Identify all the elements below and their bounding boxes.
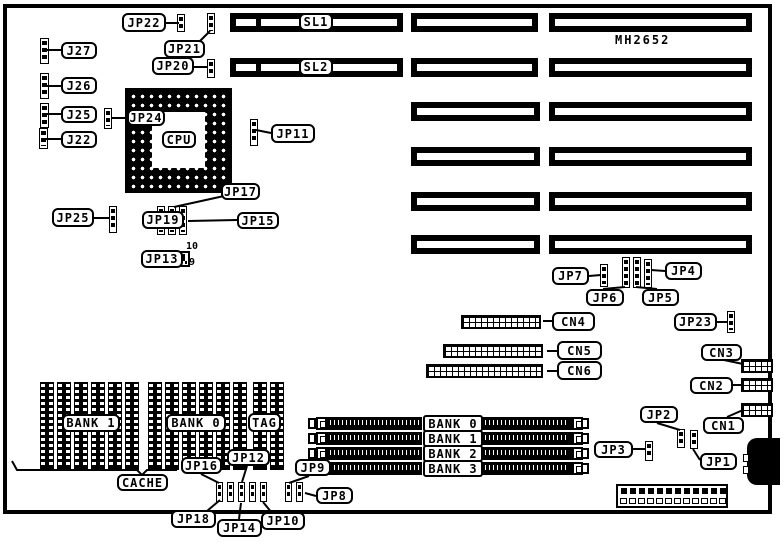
simm-end-cap: [581, 463, 589, 474]
jp18-label: JP18: [171, 510, 216, 528]
simm-socket-bar: [327, 462, 422, 475]
expansion-slot-segment: [411, 13, 538, 32]
j26-label: J26: [61, 77, 97, 94]
power-pin-socket: [620, 498, 627, 504]
slot-contact-stripe: [417, 153, 534, 160]
expansion-slot-segment: [549, 147, 752, 166]
power-pin: [711, 488, 717, 494]
jumper-block-jp21: [207, 13, 215, 34]
expansion-slot-segment: [549, 13, 752, 32]
jp8-label: JP8: [316, 487, 353, 504]
cache-label: CACHE: [117, 474, 168, 491]
pin-header-cn4: [461, 315, 541, 329]
sl2-label: SL2: [299, 58, 333, 76]
slot-contact-stripe: [555, 64, 746, 71]
slot-contact-stripe: [555, 198, 746, 205]
slot-contact-stripe: [417, 241, 534, 248]
cpu-label: CPU: [162, 131, 196, 148]
simm-socket-bar: [482, 462, 572, 475]
cn6-label: CN6: [557, 361, 602, 380]
power-pin-socket: [683, 498, 690, 504]
cache-chip: [125, 382, 139, 470]
expansion-slot-segment: [411, 235, 540, 254]
keyboard-connector: [747, 438, 780, 485]
jumper-block-jp22: [177, 14, 185, 32]
power-pin: [684, 488, 690, 494]
sl1-label: SL1: [299, 13, 333, 31]
j22-label: J22: [61, 131, 97, 148]
jp5-label: JP5: [642, 289, 679, 306]
jp15-label: JP15: [237, 212, 279, 229]
power-pin-socket: [638, 498, 645, 504]
cn1-label: CN1: [703, 417, 744, 434]
jumper-block-jp8-t: [296, 482, 303, 502]
power-pin: [693, 488, 699, 494]
slot-contact-stripe: [555, 153, 746, 160]
power-pin-socket: [629, 498, 636, 504]
slot-contact-stripe: [555, 108, 746, 115]
expansion-slot-segment: [549, 102, 752, 121]
motherboard-diagram: MH2652 BANK 0BANK 1BANK 2BANK 3109J27J26…: [0, 0, 784, 549]
power-pin: [657, 488, 663, 494]
simm-socket-bar: [482, 447, 572, 460]
jp22-label: JP22: [122, 13, 166, 32]
jumper-block-jp12-t: [249, 482, 256, 502]
jumper-block-jp6: [622, 257, 630, 288]
jumper-block-jp4: [644, 259, 652, 288]
bank0-cache-label: BANK 0: [166, 414, 226, 432]
jp16-label: JP16: [181, 457, 222, 474]
slot-contact-stripe: [417, 64, 532, 71]
jumper-block-jp9-t: [285, 482, 292, 502]
jp13-label: JP13: [141, 250, 183, 268]
expansion-slot-segment: [549, 58, 752, 77]
slot-contact-stripe: [417, 198, 534, 205]
power-pin: [666, 488, 672, 494]
jp1-label: JP1: [700, 453, 737, 470]
pin-header-cn6: [426, 364, 543, 378]
pin-number: 9: [189, 257, 195, 268]
slot-contact-stripe: [555, 241, 746, 248]
j27-label: J27: [61, 42, 97, 59]
jp21-label: JP21: [164, 40, 205, 58]
jumper-block-jp16-t: [227, 482, 234, 502]
cn4-label: CN4: [552, 312, 595, 331]
simm-bank-label: BANK 3: [423, 460, 483, 477]
jp11-label: JP11: [271, 124, 315, 143]
power-pin-socket: [719, 498, 726, 504]
jp19-label: JP19: [142, 211, 184, 229]
simm-socket-bar: [327, 447, 422, 460]
tag-label: TAG: [248, 413, 281, 432]
slot-key-divider: [256, 17, 261, 28]
jumper-block-jp24: [104, 108, 112, 129]
keyboard-connector-pin: [743, 466, 749, 474]
jumper-block-jp7: [600, 264, 608, 287]
jp20-label: JP20: [152, 57, 194, 75]
jumper-block-jp20: [207, 59, 215, 78]
simm-socket-bar: [327, 432, 422, 445]
jp3-label: JP3: [594, 441, 633, 458]
jumper-block-jp14-t: [238, 482, 245, 502]
power-pin: [720, 488, 726, 494]
slot-contact-stripe: [417, 19, 532, 26]
jumper-block-jp11: [250, 119, 258, 146]
pin-header-cn2: [741, 378, 773, 392]
j25-label: J25: [61, 106, 97, 123]
expansion-slot-segment: [411, 147, 540, 166]
simm-clip: [316, 432, 327, 445]
pin-header-cn5: [443, 344, 543, 358]
power-pin-socket: [647, 498, 654, 504]
jp2-label: JP2: [640, 406, 678, 423]
jp25-label: JP25: [52, 208, 94, 227]
jp23-label: JP23: [674, 313, 717, 331]
expansion-slot-segment: [549, 192, 752, 211]
jumper-block-jp2: [677, 429, 685, 448]
jumper-block-jp10-t: [260, 482, 267, 502]
jumper-block-jp23: [727, 311, 735, 333]
jumper-block-jp3: [645, 441, 653, 461]
expansion-slot-segment: [411, 102, 540, 121]
cn2-label: CN2: [690, 377, 733, 394]
jumper-block-j25: [40, 103, 49, 128]
power-pin-socket: [665, 498, 672, 504]
jp4-label: JP4: [665, 262, 702, 280]
simm-end-cap: [308, 448, 316, 459]
jumper-block-jp5: [633, 257, 641, 288]
power-pin: [702, 488, 708, 494]
simm-clip: [316, 417, 327, 430]
power-pin-socket: [710, 498, 717, 504]
simm-socket-bar: [327, 417, 422, 430]
keyboard-connector-pin: [743, 454, 749, 462]
simm-end-cap: [581, 433, 589, 444]
cache-chip: [40, 382, 54, 470]
cache-chip: [148, 382, 162, 470]
slot-contact-stripe: [417, 108, 534, 115]
simm-end-cap: [308, 433, 316, 444]
expansion-slot-segment: [411, 58, 538, 77]
bank1-cache-label: BANK 1: [62, 414, 120, 432]
jumper-block-jp1: [690, 430, 698, 449]
jumper-block-j27: [40, 38, 49, 64]
power-pin: [639, 488, 645, 494]
expansion-slot-segment: [411, 192, 540, 211]
power-pin-socket: [674, 498, 681, 504]
simm-end-cap: [308, 418, 316, 429]
pin-number: 10: [186, 241, 198, 252]
simm-socket-bar: [482, 432, 572, 445]
board-model-text: MH2652: [615, 33, 670, 47]
power-pin-socket: [701, 498, 708, 504]
jp7-label: JP7: [552, 267, 589, 285]
jp17-label: JP17: [221, 183, 260, 200]
jumper-block-jp18-t: [216, 482, 223, 502]
pin-header-cn1: [741, 403, 773, 417]
power-pin: [621, 488, 627, 494]
jp14-label: JP14: [217, 519, 262, 537]
power-pin-socket: [656, 498, 663, 504]
jp9-label: JP9: [295, 459, 331, 476]
jp6-label: JP6: [586, 289, 624, 306]
jp12-label: JP12: [227, 449, 270, 466]
power-pin: [630, 488, 636, 494]
jp24-label: JP24: [127, 109, 165, 126]
expansion-slot-segment: [549, 235, 752, 254]
slot-contact-stripe: [555, 19, 746, 26]
simm-socket-bar: [482, 417, 572, 430]
simm-end-cap: [581, 418, 589, 429]
jp10-label: JP10: [261, 512, 305, 530]
cn3-label: CN3: [701, 344, 742, 361]
jumper-block-j26: [40, 73, 49, 99]
jumper-block-jp25: [109, 206, 117, 233]
simm-end-cap: [581, 448, 589, 459]
power-pin: [648, 488, 654, 494]
pin-header-cn3: [741, 359, 773, 373]
power-pin: [675, 488, 681, 494]
slot-key-divider: [256, 62, 261, 73]
power-pin-socket: [692, 498, 699, 504]
jumper-block-j22: [39, 128, 48, 149]
cn5-label: CN5: [557, 341, 602, 360]
